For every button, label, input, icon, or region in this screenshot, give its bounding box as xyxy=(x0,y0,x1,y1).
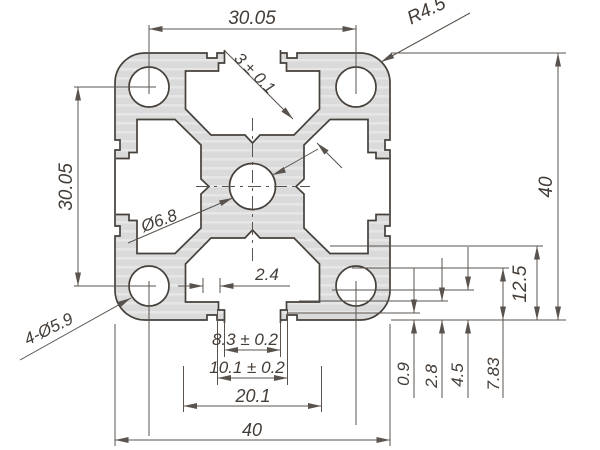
label-overall-height: 40 xyxy=(536,176,557,198)
label-left-hole-spacing: 30.05 xyxy=(56,163,77,211)
label-step-d: 7.83 xyxy=(484,357,503,391)
label-slot-throat: 10.1 ± 0.2 xyxy=(209,358,285,377)
label-step-a: 0.9 xyxy=(394,362,413,386)
label-top-hole-spacing: 30.05 xyxy=(228,8,276,29)
label-step-b: 2.8 xyxy=(422,364,441,389)
extrusion-drawing: 30.05 30.05 R4.5 3 ± 0.1 40 Ø6.8 4-Ø5.9 … xyxy=(0,0,600,450)
technical-drawing-canvas: 30.05 30.05 R4.5 3 ± 0.1 40 Ø6.8 4-Ø5.9 … xyxy=(0,0,600,450)
label-corner-holes: 4-Ø5.9 xyxy=(21,309,77,349)
label-corner-radius: R4.5 xyxy=(404,0,450,29)
label-slot-depth: 12.5 xyxy=(510,265,531,302)
label-cavity-width: 20.1 xyxy=(234,386,270,406)
label-step-c: 4.5 xyxy=(448,363,467,387)
extrusion-profile xyxy=(115,50,390,323)
label-lip-length: 2.4 xyxy=(254,265,279,284)
label-slot-opening: 8.3 ± 0.2 xyxy=(212,330,279,349)
label-overall-width: 40 xyxy=(242,420,262,440)
